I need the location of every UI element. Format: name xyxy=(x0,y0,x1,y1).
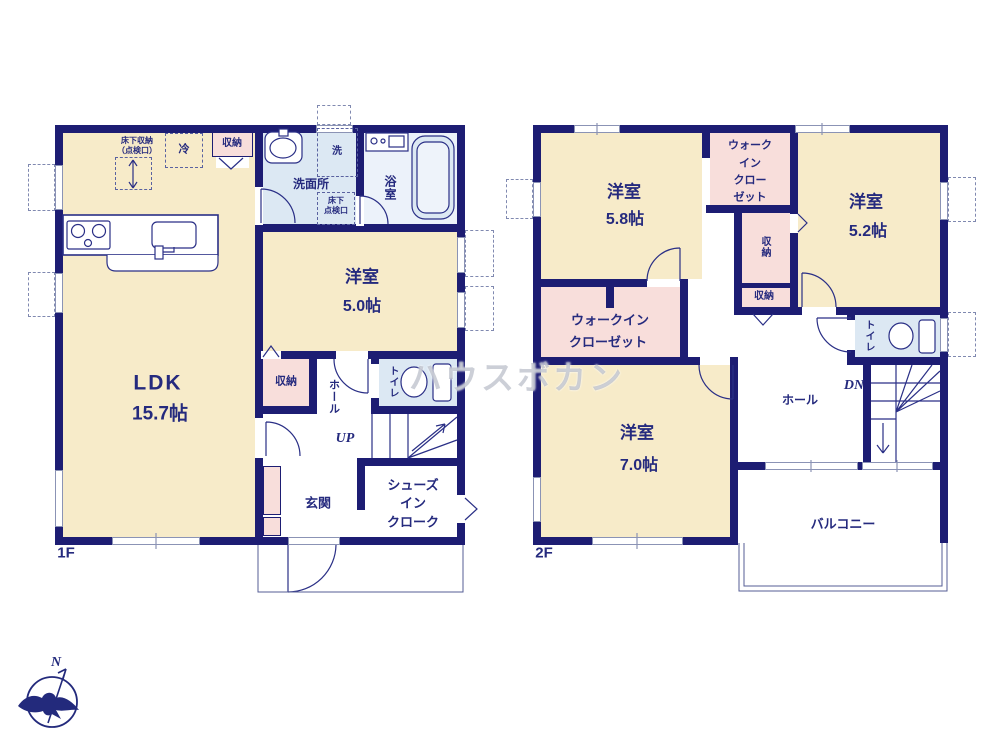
balcony-railing-inner xyxy=(744,543,942,586)
entrance-label: 玄関 xyxy=(305,497,331,510)
north-arrow-icon xyxy=(48,669,66,723)
storage-mid-label: 収納 xyxy=(275,377,297,388)
wic-top-label4: ゼット xyxy=(734,193,767,204)
underfloor-storage-label2: （点検口） xyxy=(117,147,157,155)
underfloor-hatch-label2: 点検口 xyxy=(324,207,348,215)
bedroom50-area: 5.0帖 xyxy=(343,299,381,315)
eave-mark xyxy=(948,177,976,222)
bedroom52-label: 洋室 xyxy=(849,194,883,211)
refrigerator-label: 冷 xyxy=(179,145,190,156)
window xyxy=(592,537,683,545)
storage-top-door-gap xyxy=(216,157,249,168)
window xyxy=(533,182,541,217)
toilet-1f-label: トイレ xyxy=(387,366,397,399)
compass-circle xyxy=(27,677,77,727)
ldk-area: 15.7帖 xyxy=(132,405,188,424)
window xyxy=(457,292,465,328)
underfloor-hatch-label1: 床下 xyxy=(328,197,344,205)
room-bedroom-5-8 xyxy=(541,133,702,279)
closet-door-marker xyxy=(753,314,773,325)
room-bedroom-5-0 xyxy=(263,232,457,351)
toilet-2f-label: トイレ xyxy=(863,320,873,353)
bedroom58-area: 5.8帖 xyxy=(606,212,644,228)
porch-outline xyxy=(258,545,463,592)
wic-left-label2: クローゼット xyxy=(569,336,647,349)
bedroom50-label: 洋室 xyxy=(345,269,379,286)
window xyxy=(55,165,63,210)
entrance-door-sill xyxy=(288,537,340,545)
shoes-closet-label3: クローク xyxy=(387,516,439,529)
door-arc-ldk xyxy=(266,422,300,456)
bedroom70-area: 7.0帖 xyxy=(620,458,658,474)
eave-mark xyxy=(28,272,55,317)
hall-2f-label: ホール xyxy=(782,394,818,406)
eave-mark xyxy=(948,312,976,357)
hall-1f-label: ホール xyxy=(328,379,339,415)
shoes-closet-label2: イン xyxy=(400,497,426,510)
room-bedroom-5-2 xyxy=(798,133,940,307)
bedroom70-label: 洋室 xyxy=(620,425,654,442)
watermark: ハウスボカン xyxy=(409,351,625,399)
window xyxy=(457,237,465,273)
storage-vertical-label: 収納 xyxy=(759,236,769,258)
window xyxy=(795,125,850,133)
balcony-railing-outer xyxy=(739,543,947,591)
compass-north-label: N xyxy=(51,656,61,670)
stairs-up-label: UP xyxy=(336,432,355,446)
side-door-marker xyxy=(465,498,477,520)
compass xyxy=(18,669,79,727)
window xyxy=(574,125,620,133)
balcony-sliding-door xyxy=(862,462,933,470)
storage-small-label: 収納 xyxy=(754,292,774,302)
floor1-label: 1F xyxy=(57,546,75,561)
window xyxy=(55,273,63,313)
wic-top-label2: イン xyxy=(739,159,761,170)
bedroom58-label: 洋室 xyxy=(607,184,641,201)
eave-mark xyxy=(28,164,55,211)
bedroom52-area: 5.2帖 xyxy=(849,224,887,240)
stairs-down-label: DN xyxy=(844,379,864,393)
wic-left-label1: ウォークイン xyxy=(571,314,649,327)
underfloor-storage-label1: 床下収納 xyxy=(121,137,153,145)
room-bath xyxy=(364,133,457,224)
shoes-closet-label1: シューズ xyxy=(387,479,438,492)
window xyxy=(55,470,63,527)
eave-mark xyxy=(465,286,494,331)
floor2-label: 2F xyxy=(535,546,553,561)
eave-mark xyxy=(506,179,533,219)
room-ldk xyxy=(63,133,255,537)
storage-top-label: 収納 xyxy=(222,139,242,149)
door-arc-entrance xyxy=(288,545,336,592)
stairs-down xyxy=(871,365,940,462)
underfloor-storage-hatch xyxy=(115,157,152,190)
entrance-shoe-cabinet-upper xyxy=(263,466,281,515)
balcony-sliding-door xyxy=(765,462,858,470)
window xyxy=(940,318,948,352)
wic-top-label1: ウォーク xyxy=(728,141,772,152)
door-arc-toilet2f xyxy=(817,318,851,352)
eave-mark xyxy=(465,230,494,277)
washer-label: 洗 xyxy=(332,147,342,157)
window xyxy=(940,182,948,220)
entrance-shoe-cabinet-lower xyxy=(263,517,281,536)
floor-plan-canvas: LDK 15.7帖 洋室 5.0帖 洗面所 浴室 洗 冷 収納 床下収納 （点検… xyxy=(0,0,1000,750)
eave-mark xyxy=(317,105,351,125)
washroom-label: 洗面所 xyxy=(293,178,329,190)
wic-top-label3: クロー xyxy=(734,176,767,187)
stairs-up xyxy=(372,414,457,458)
window xyxy=(533,477,541,522)
ldk-label: LDK xyxy=(133,373,182,394)
bath-label: 浴室 xyxy=(384,175,396,201)
balcony-label: バルコニー xyxy=(811,518,876,531)
compass-bird-icon xyxy=(18,693,79,719)
window xyxy=(112,537,200,545)
